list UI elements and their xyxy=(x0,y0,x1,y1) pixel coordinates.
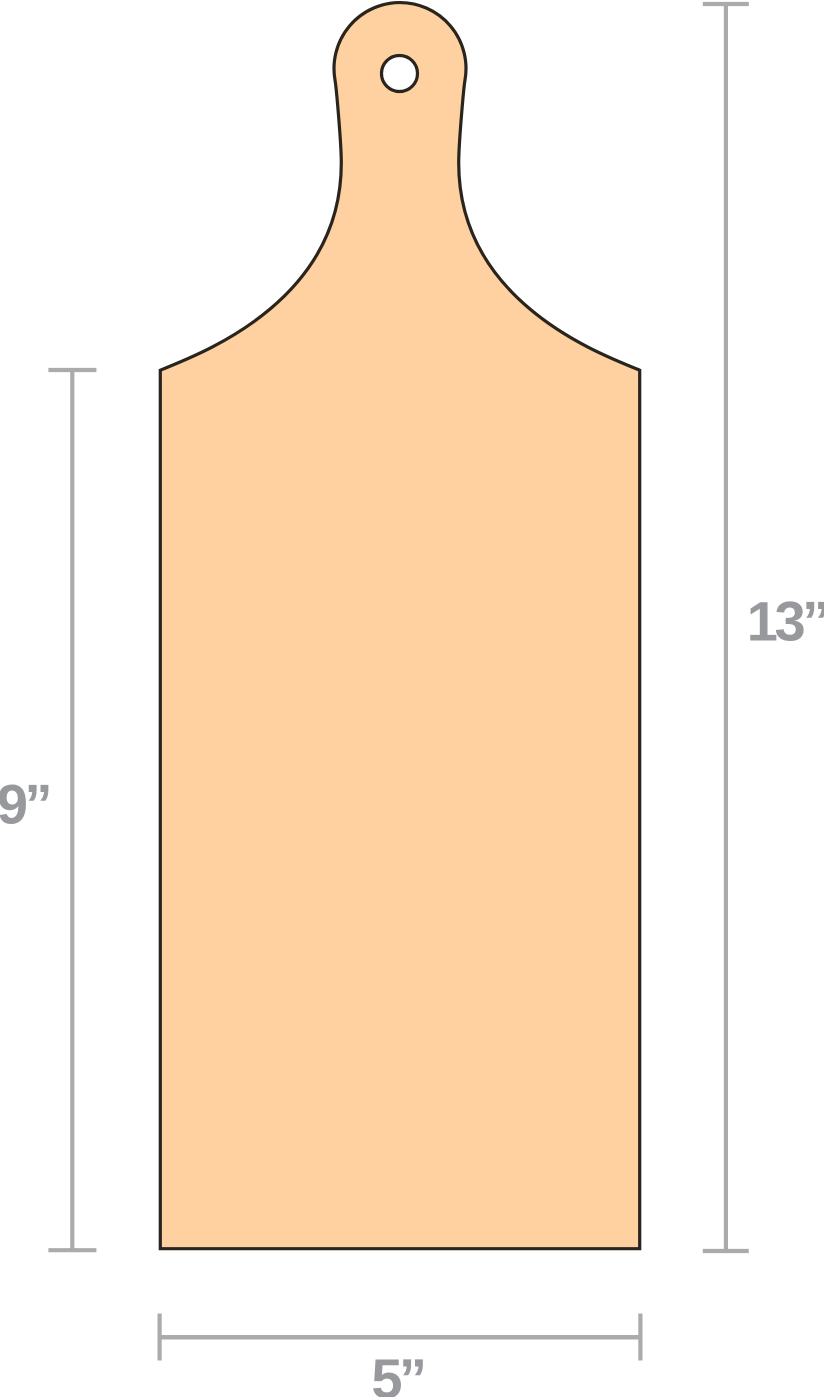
svg-text:9”: 9” xyxy=(0,773,49,836)
svg-text:5”: 5” xyxy=(371,1347,423,1397)
svg-text:13”: 13” xyxy=(747,590,824,653)
